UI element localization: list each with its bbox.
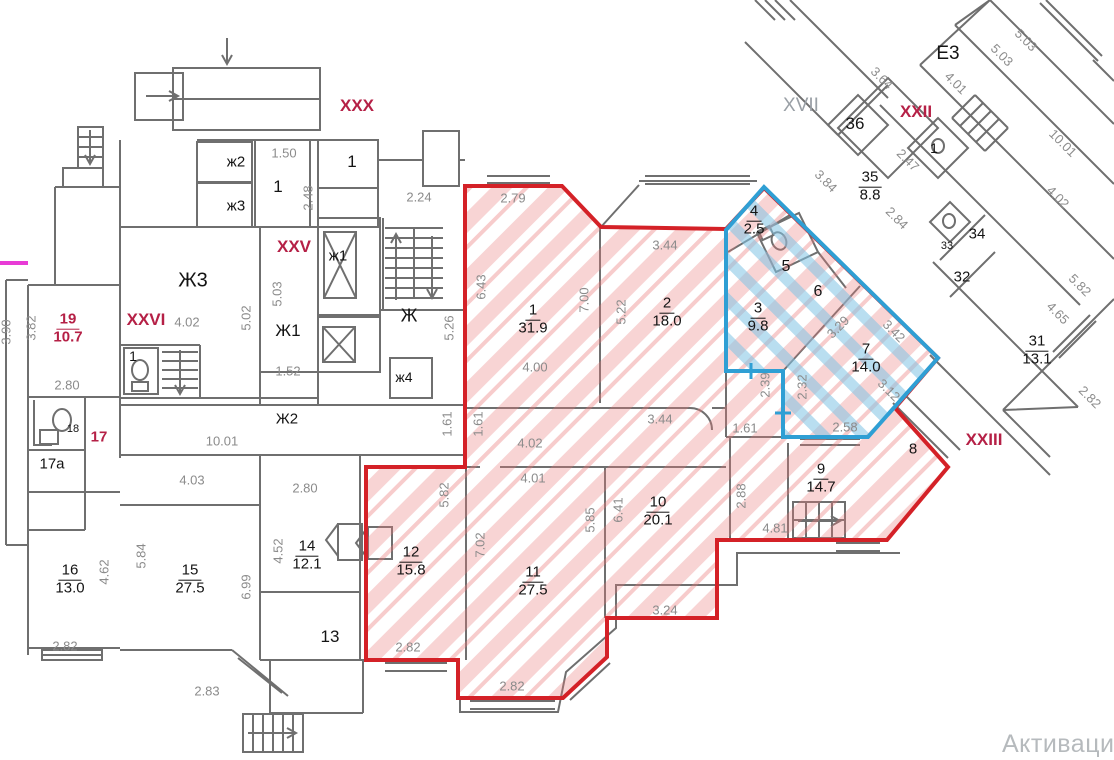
dimension-label: 3.44 <box>647 412 672 427</box>
room-name-label: 34 <box>969 226 986 243</box>
dimension-label: 7.02 <box>473 532 488 557</box>
dimension-label: 5.22 <box>614 299 629 324</box>
room-area: 9.8 <box>748 319 769 336</box>
dimension-label: 2.80 <box>292 481 317 496</box>
room-area-label: 1412.1 <box>292 539 321 574</box>
dimension-label: 3.24 <box>652 603 677 618</box>
room-number: 35 <box>859 170 882 188</box>
dimension-label: 1.52 <box>275 364 300 379</box>
stairs-icon <box>952 95 1008 151</box>
dimension-label: 2.24 <box>406 190 431 205</box>
room-name-label: 17а <box>39 456 64 473</box>
toilet-icon <box>34 400 71 445</box>
room-area-label: 42.5 <box>744 204 765 239</box>
room-area: 15.8 <box>396 563 425 580</box>
room-area-label: 914.7 <box>806 462 835 497</box>
arrow-down-icon <box>222 38 232 64</box>
room-number: 31 <box>1026 334 1049 352</box>
dimension-label: 4.62 <box>97 559 112 584</box>
room-number: 9 <box>814 462 828 480</box>
room-name-label: 13 <box>321 627 340 647</box>
dimension-label: 2.58 <box>832 420 857 435</box>
room-number: 19 <box>57 312 80 330</box>
dimension-label: 5.26 <box>442 315 457 340</box>
room-area: 14.7 <box>806 480 835 497</box>
room-name-label: 1 <box>347 152 356 172</box>
room-area: 31.9 <box>518 321 547 338</box>
room-area-label: 1527.5 <box>175 563 204 598</box>
dimension-label: 2.48 <box>301 185 316 210</box>
watermark: Активаци <box>1002 730 1114 759</box>
dimension-label: 3.90 <box>0 319 14 344</box>
room-area-label: 1613.0 <box>55 563 84 598</box>
dimension-label: 4.01 <box>520 471 545 486</box>
dimension-label: 4.81 <box>762 521 787 536</box>
room-number: 11 <box>522 565 544 583</box>
dimension-label: 2.82 <box>499 679 524 694</box>
dimension-label: 5.84 <box>134 543 149 568</box>
zone-number-label: XVII <box>783 95 819 117</box>
room-name-label: Ж2 <box>276 411 298 428</box>
dimension-label: 1.50 <box>271 146 296 161</box>
room-number: 7 <box>859 342 873 360</box>
room-name-label: Ж <box>401 306 418 327</box>
room-area: 13.0 <box>55 581 84 598</box>
dimension-label: 2.88 <box>734 483 749 508</box>
room-number: 12 <box>400 545 423 563</box>
room-area-label: 218.0 <box>652 296 681 331</box>
room-area-label: 358.8 <box>859 170 882 205</box>
room-name-label: 5 <box>782 258 791 276</box>
room-area: 18.0 <box>652 314 681 331</box>
room-area: 14.0 <box>851 360 880 377</box>
room-number: 3 <box>751 301 765 319</box>
dimension-label: 2.82 <box>52 639 77 654</box>
dimension-label: 6.99 <box>239 574 254 599</box>
arrow-right-icon <box>146 91 178 101</box>
room-name-label: 32 <box>954 269 971 286</box>
zone-number-label: XXX <box>340 96 374 116</box>
room-number: 14 <box>296 539 319 557</box>
dimension-label: 1.61 <box>732 421 757 436</box>
room-number: 10 <box>647 495 670 513</box>
zone-number-label: XXV <box>277 237 311 257</box>
dimension-label: 2.83 <box>194 684 219 699</box>
room-name-label: ж4 <box>395 369 412 385</box>
room-name-label: 1 <box>129 348 137 364</box>
room-name-label: 36 <box>846 114 865 134</box>
dimension-label: 10.01 <box>206 434 239 449</box>
room-area-label: 1127.5 <box>518 565 547 600</box>
dimension-label: 6.41 <box>611 497 626 522</box>
dimension-label: 1.61 <box>440 411 455 436</box>
room-area: 2.5 <box>744 222 765 239</box>
room-name-label: ж1 <box>329 248 347 265</box>
dimension-label: 2.80 <box>54 378 79 393</box>
dimension-label: 7.00 <box>577 287 592 312</box>
toilet-icon <box>943 214 955 228</box>
room-number: 15 <box>179 563 202 581</box>
room-name-label: Ж3 <box>178 270 208 293</box>
room-area: 13.1 <box>1022 352 1051 369</box>
room-area-label: 3113.1 <box>1022 334 1051 369</box>
room-area: 12.1 <box>292 557 321 574</box>
red-zone-area <box>366 186 948 698</box>
dimension-label: 1.61 <box>471 411 486 436</box>
room-name-label: 6 <box>814 283 823 301</box>
room-area: 10.7 <box>53 330 82 347</box>
room-number: 1 <box>526 303 540 321</box>
stairs-icon <box>243 714 303 752</box>
room-area-label: 1020.1 <box>643 495 672 530</box>
floor-plan: Активаци 1.502.242.793.444.004.023.441.6… <box>0 0 1114 760</box>
zone-number-label: XXII <box>900 102 932 122</box>
dimension-label: 6.43 <box>474 274 489 299</box>
room-area: 27.5 <box>175 581 204 598</box>
dimension-label: 4.02 <box>174 315 199 330</box>
dimension-label: 2.39 <box>758 372 773 397</box>
dimension-label: 5.03 <box>270 281 285 306</box>
room-name-label: 18 <box>67 423 79 435</box>
room-name-label: 8 <box>909 441 917 458</box>
room-number: 4 <box>747 204 761 222</box>
elevator-icon <box>318 218 380 315</box>
dimension-label: 3.44 <box>652 238 677 253</box>
room-area: 20.1 <box>643 513 672 530</box>
room-name-label: E3 <box>936 43 959 65</box>
dimension-label: 5.02 <box>239 305 254 330</box>
dimension-label: 4.03 <box>179 473 204 488</box>
dimension-label: 5.82 <box>437 482 452 507</box>
dimension-label: 2.79 <box>500 191 525 206</box>
room-name-label: 1 <box>930 140 938 156</box>
room-name-label: ж2 <box>227 154 245 171</box>
zone-number-label: XXVI <box>127 310 166 330</box>
room-area-label: 131.9 <box>518 303 547 338</box>
dimension-label: 4.52 <box>271 538 286 563</box>
dimension-label: 4.00 <box>522 360 547 375</box>
elevator-icon <box>318 317 380 372</box>
room-area-label: 714.0 <box>851 342 880 377</box>
zone-number-label: 17 <box>91 429 108 446</box>
dimension-label: 5.85 <box>583 507 598 532</box>
room-area: 27.5 <box>518 583 547 600</box>
dimension-label: 2.82 <box>395 640 420 655</box>
room-name-label: Ж1 <box>275 321 300 341</box>
room-name-label: 1 <box>273 177 282 197</box>
room-area-label: 1215.8 <box>396 545 425 580</box>
room-area-label: 39.8 <box>748 301 769 336</box>
room-name-label: 33 <box>941 240 953 252</box>
stairs-icon <box>162 350 198 394</box>
room-area: 8.8 <box>859 188 882 205</box>
room-number: 16 <box>59 563 82 581</box>
room-name-label: ж3 <box>227 198 245 215</box>
dimension-label: 2.32 <box>795 374 810 399</box>
room-area-label: 1910.7 <box>53 312 82 347</box>
dimension-label: 3.82 <box>24 315 39 340</box>
zone-number-label: XXIII <box>966 430 1003 450</box>
dimension-label: 4.02 <box>517 436 542 451</box>
floor-plan-drawing <box>0 0 1114 760</box>
room-number: 2 <box>660 296 674 314</box>
stairs-icon <box>78 127 103 168</box>
